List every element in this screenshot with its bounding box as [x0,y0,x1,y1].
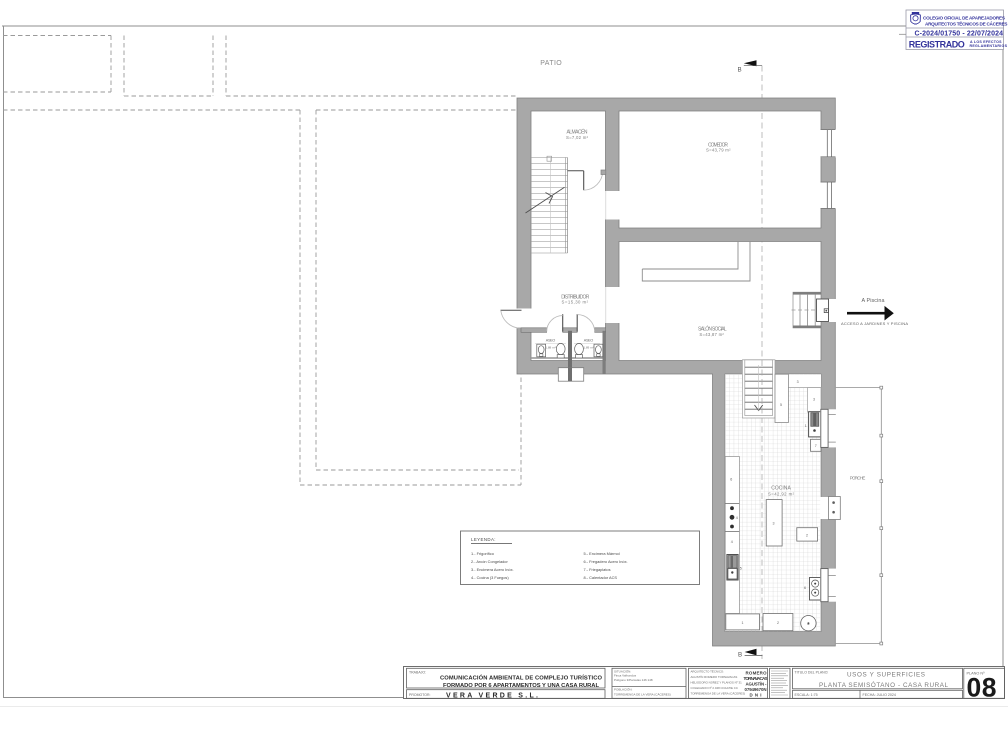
svg-text:HELIODORO NÚÑEZ Y PLANOS Nº 31: HELIODORO NÚÑEZ Y PLANOS Nº 31 [691,680,743,685]
svg-text:FORMADO POR 6 APARTAMENTOS Y U: FORMADO POR 6 APARTAMENTOS Y UNA CASA RU… [443,683,599,689]
svg-text:8.- Calentador ACS: 8.- Calentador ACS [584,575,618,580]
svg-text:8: 8 [807,622,809,626]
svg-text:REGLAMENTARIOS: REGLAMENTARIOS [970,44,1008,48]
svg-text:ROMERO: ROMERO [746,671,768,676]
svg-text:6: 6 [730,478,732,482]
svg-text:PLANTA SEMISÓTANO - CASA RURAL: PLANTA SEMISÓTANO - CASA RURAL [819,680,948,689]
svg-text:TORREMENGA DE LA VERA (CÁCERES: TORREMENGA DE LA VERA (CÁCERES) [614,692,671,696]
svg-text:COMUNICACIÓN AMBIENTAL DE COMP: COMUNICACIÓN AMBIENTAL DE COMPLEJO TURÍS… [440,674,602,682]
svg-text:S=43,79 m²: S=43,79 m² [706,148,731,153]
svg-text:ASEO: ASEO [546,339,556,343]
svg-text:COCINA: COCINA [771,485,791,491]
svg-text:AGUSTÍN ROMERO TORNAVACAS: AGUSTÍN ROMERO TORNAVACAS [691,675,738,679]
svg-text:TITULO DEL PLANO:: TITULO DEL PLANO: [795,671,829,675]
svg-text:ARQUITECTO TÉCNICO:: ARQUITECTO TÉCNICO: [691,669,725,674]
svg-text:ESCALA: 1:75: ESCALA: 1:75 [795,693,818,697]
svg-text:ASEO: ASEO [584,339,594,343]
svg-text:USOS Y SUPERFICIES: USOS Y SUPERFICIES [847,671,925,678]
svg-text:SITUACIÓN:: SITUACIÓN: [614,668,631,673]
svg-text:TRABAJO:: TRABAJO: [409,671,426,675]
svg-text:3: 3 [797,380,799,384]
svg-text:3: 3 [773,522,775,526]
svg-text:PROMOTOR:: PROMOTOR: [409,693,431,697]
svg-text:5.- Encimera Mármol: 5.- Encimera Mármol [584,551,620,556]
svg-text:PORCHE: PORCHE [850,476,866,481]
svg-text:2: 2 [777,621,779,625]
svg-text:Polígono 3/Parcelas 146 148: Polígono 3/Parcelas 146 148 [614,678,653,682]
svg-text:ACCESO A JARDINES Y PISCINA: ACCESO A JARDINES Y PISCINA [841,321,908,326]
svg-text:S=15,30 m²: S=15,30 m² [562,300,589,305]
svg-text:A Piscina: A Piscina [862,298,885,304]
svg-text:2: 2 [806,534,808,538]
svg-text:TORREMENGA DE LA VERA (CÁCERES: TORREMENGA DE LA VERA (CÁCERES) [691,692,746,696]
svg-text:REGISTRADO: REGISTRADO [909,40,965,50]
svg-text:1.- Frigorífico: 1.- Frigorífico [471,551,494,556]
svg-text:B: B [738,67,742,74]
svg-text:5: 5 [740,567,742,571]
svg-text:3: 3 [813,398,815,402]
svg-text:PATIO: PATIO [540,60,562,67]
svg-text:3.- Encimera Acero Inóx.: 3.- Encimera Acero Inóx. [471,567,514,572]
svg-text:2.- Arcón Congelador: 2.- Arcón Congelador [471,559,508,564]
svg-text:COLEGIADO Nº 2.048 COAATIE CC: COLEGIADO Nº 2.048 COAATIE CC [691,686,738,690]
svg-text:7: 7 [815,444,817,448]
svg-text:07949670N: 07949670N [745,687,767,692]
svg-text:FECHA: JULIO 2024: FECHA: JULIO 2024 [863,693,896,697]
svg-text:1,89 m²: 1,89 m² [583,346,594,350]
svg-text:4: 4 [736,516,738,520]
svg-text:1: 1 [805,424,807,428]
svg-text:4.- Cocina (3 Fuegos): 4.- Cocina (3 Fuegos) [471,575,509,580]
svg-text:C-2024/01750 - 22/07/2024: C-2024/01750 - 22/07/2024 [915,30,1004,37]
svg-text:DNI: DNI [750,692,762,697]
svg-text:6: 6 [804,586,806,590]
svg-text:08: 08 [967,672,997,702]
svg-text:4: 4 [731,540,733,544]
svg-text:1: 1 [742,621,744,625]
svg-text:A LOS EFECTOS: A LOS EFECTOS [970,40,1002,44]
svg-text:ARQUITECTOS TÉCNICOS DE CÁCERE: ARQUITECTOS TÉCNICOS DE CÁCERES [925,19,1008,26]
svg-text:5: 5 [780,403,782,407]
svg-text:B: B [738,652,742,659]
svg-text:TORNAVACAS: TORNAVACAS [744,676,768,681]
svg-text:6.- Fregadero Acero Inóx.: 6.- Fregadero Acero Inóx. [584,559,628,564]
svg-text:7.- Friegaplatos: 7.- Friegaplatos [584,567,611,572]
svg-text:COLEGIO OFICIAL DE APAREJADORE: COLEGIO OFICIAL DE APAREJADORES [923,15,1005,20]
svg-text:S=7,02 m²: S=7,02 m² [566,135,589,140]
svg-text:POBLACIÓN:: POBLACIÓN: [614,687,633,692]
svg-text:1,88 m²: 1,88 m² [545,346,556,350]
svg-text:S=42,92 m²: S=42,92 m² [768,492,795,497]
svg-text:AGUSTÍN -: AGUSTÍN - [746,682,768,687]
svg-text:S=43,87 m²: S=43,87 m² [699,332,724,337]
svg-text:LEYENDA:: LEYENDA: [471,537,496,542]
